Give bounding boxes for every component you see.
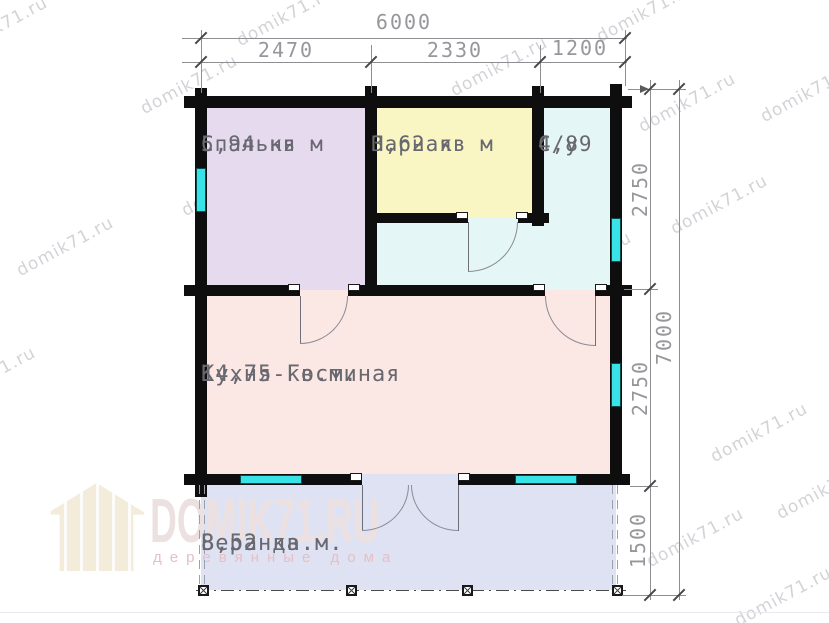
dimension-segment: 2330: [427, 38, 483, 62]
veranda-edge-right: [612, 485, 613, 590]
dimension-segment: 1200: [552, 36, 608, 60]
dimension-segment: 2750: [628, 360, 652, 416]
veranda-edge-right: [617, 485, 618, 590]
watermark-text: domik71.ru: [667, 171, 771, 239]
watermark-text: domik71.ru: [773, 456, 829, 524]
extension-line: [624, 289, 658, 290]
dimension-segment: 2750: [628, 161, 652, 217]
door-leaf-kitchen-right: [595, 296, 596, 346]
veranda-post: [198, 585, 209, 596]
door-jamb: [348, 284, 360, 291]
room-area: 5,94 кв м: [201, 128, 324, 161]
extension-line: [540, 45, 541, 93]
veranda-edge-bottom: [196, 590, 626, 591]
door-jamb: [533, 284, 545, 291]
watermark-text: domik71.ru: [731, 563, 829, 623]
watermark-text: domik71.ru: [757, 59, 829, 127]
door-jamb: [350, 473, 362, 481]
veranda-edge-left: [199, 485, 200, 590]
room-area: 8,52 кв.м.: [201, 528, 343, 559]
room-area: 3,62 кв м: [371, 128, 494, 161]
window-kitchen-bottom-left: [240, 475, 302, 484]
wall-kitchen-top: [348, 285, 545, 296]
dimension-segment: 1500: [626, 512, 650, 568]
watermark-text: domik71.ru: [0, 0, 51, 61]
veranda-post: [462, 585, 473, 596]
watermark-text: domik71.ru: [707, 399, 811, 467]
window-bathroom-right: [611, 218, 621, 262]
door-jamb: [595, 284, 607, 291]
page-divider-line: [0, 612, 829, 613]
dimension-total-height: 7000: [652, 309, 676, 365]
dimension-segment: 2470: [258, 38, 314, 62]
dimension-total-width: 6000: [376, 10, 432, 34]
door-jamb: [288, 284, 300, 291]
wall-kitchen-top: [184, 285, 300, 296]
extension-line: [630, 486, 658, 487]
room-area: 14,75 кв.м.: [201, 356, 358, 394]
watermark-text: domik71.ru: [593, 0, 697, 47]
floor-plan-canvas: domik71.ru domik71.ru domik71.ru domik71…: [0, 0, 829, 623]
door-jamb: [516, 212, 528, 219]
window-bedroom-left: [196, 168, 206, 212]
room-area: 4,89: [538, 128, 593, 161]
dimension-line-right-total: [679, 80, 680, 600]
window-kitchen-bottom-right: [515, 475, 577, 484]
extension-line: [371, 45, 372, 93]
watermark-text: domik71.ru: [0, 343, 39, 411]
wall-top: [184, 96, 632, 108]
wall-steamroom-bottom: [366, 213, 468, 223]
door-jamb: [458, 473, 470, 481]
watermark-text: domik71.ru: [643, 504, 747, 572]
dimension-line-right-segments: [650, 80, 651, 600]
door-leaf-veranda-right: [458, 485, 459, 531]
watermark-text: domik71.ru: [13, 213, 117, 281]
dimension-line-top-segments: [182, 62, 627, 63]
veranda-post: [346, 585, 357, 596]
door-jamb: [456, 212, 468, 219]
window-kitchen-right: [611, 363, 621, 407]
wall-bedroom-steamroom: [365, 86, 377, 296]
logo-house-icon: [48, 483, 145, 571]
